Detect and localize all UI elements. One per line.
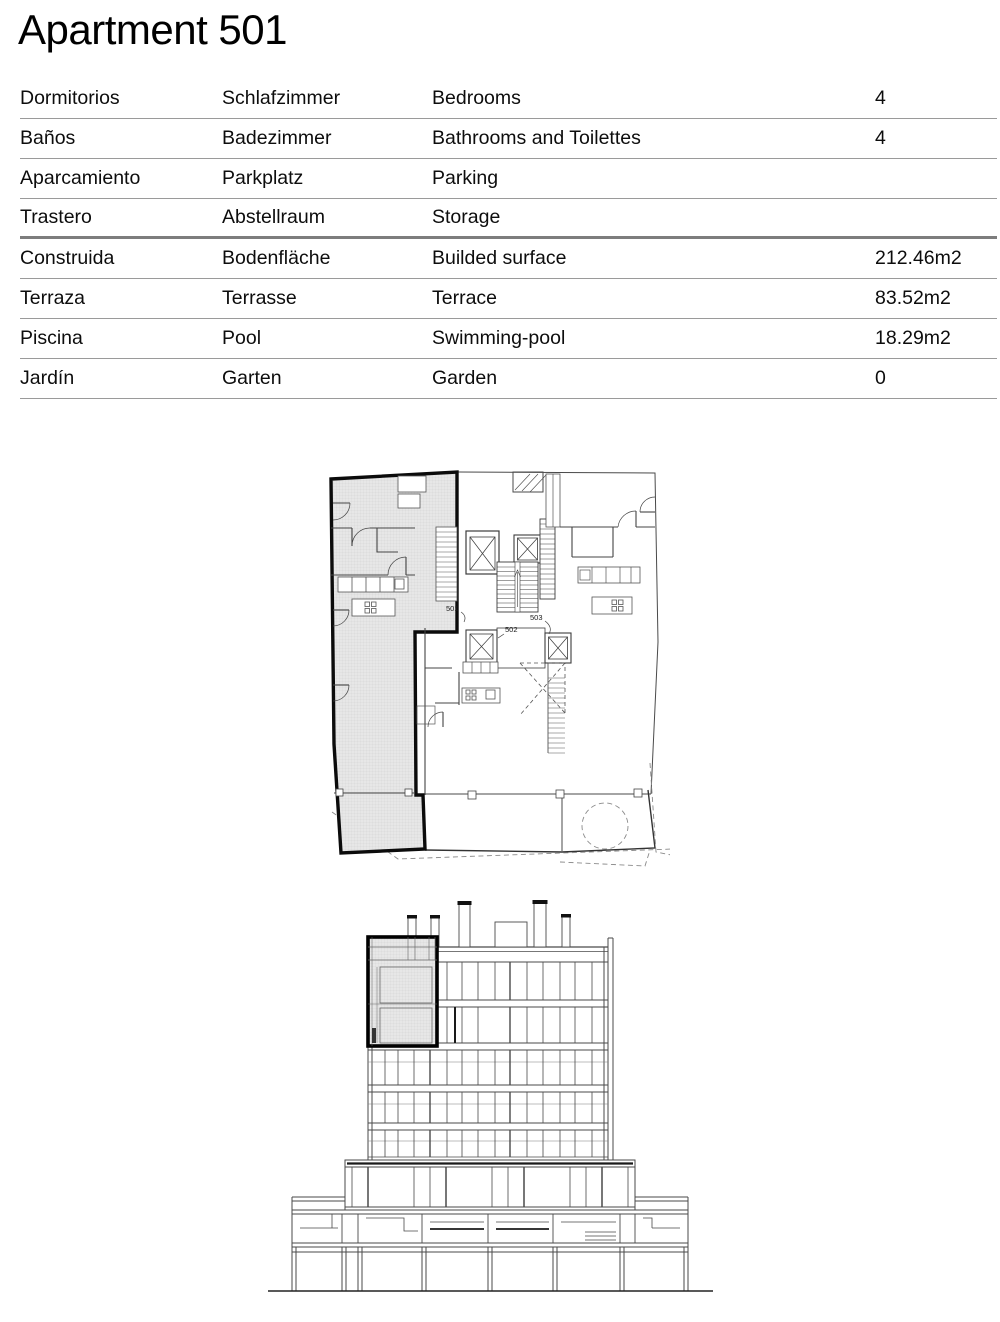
spec-cell-value: 83.52m2 <box>875 287 997 310</box>
elevation-highlight-501 <box>368 937 437 1046</box>
spec-cell-es: Piscina <box>20 327 222 350</box>
spec-cell-value: 18.29m2 <box>875 327 997 350</box>
spec-cell-en: Garden <box>432 367 875 390</box>
side-stairs <box>540 519 555 599</box>
spec-row: Terraza Terrasse Terrace 83.52m2 <box>20 279 997 319</box>
spec-cell-es: Aparcamiento <box>20 167 222 190</box>
main-stairs <box>497 562 538 612</box>
elevator-icon <box>466 531 499 574</box>
elevator-icon <box>466 630 497 663</box>
unit-label-503: 503 <box>530 613 543 622</box>
kitchen-island <box>592 597 632 614</box>
lobby <box>497 628 545 668</box>
spec-cell-es: Trastero <box>20 206 222 229</box>
unit-label-502: 502 <box>505 625 518 634</box>
spec-cell-es: Dormitorios <box>20 87 222 110</box>
spec-row: Dormitorios Schlafzimmer Bedrooms 4 <box>20 79 997 119</box>
spec-cell-en: Bathrooms and Toilettes <box>432 127 875 150</box>
kitchen-island <box>352 599 395 616</box>
elevation-drawing <box>263 896 715 1298</box>
spec-cell-de: Schlafzimmer <box>222 87 432 110</box>
spec-cell-en: Swimming-pool <box>432 327 875 350</box>
spec-cell-de: Bodenfläche <box>222 247 432 270</box>
spec-cell-de: Terrasse <box>222 287 432 310</box>
spec-cell-en: Builded surface <box>432 247 875 270</box>
elevator-icon <box>514 535 541 563</box>
specs-table: Dormitorios Schlafzimmer Bedrooms 4 Baño… <box>20 79 997 399</box>
spec-row: Baños Badezimmer Bathrooms and Toilettes… <box>20 119 997 159</box>
spec-cell-en: Parking <box>432 167 875 190</box>
spec-cell-en: Bedrooms <box>432 87 875 110</box>
spec-row: Trastero Abstellraum Storage <box>20 199 997 239</box>
unit-label-501: 501 <box>446 604 459 613</box>
page-title: Apartment 501 <box>18 6 287 54</box>
spec-row: Construida Bodenfläche Builded surface 2… <box>20 239 997 279</box>
spec-row: Piscina Pool Swimming-pool 18.29m2 <box>20 319 997 359</box>
spec-cell-de: Garten <box>222 367 432 390</box>
apartment-spec-sheet: Apartment 501 Dormitorios Schlafzimmer B… <box>0 0 1000 1322</box>
spec-cell-value: 0 <box>875 367 997 390</box>
building-lines <box>292 938 688 1291</box>
spec-cell-es: Terraza <box>20 287 222 310</box>
spec-row: Aparcamiento Parkplatz Parking <box>20 159 997 199</box>
spec-cell-de: Pool <box>222 327 432 350</box>
spec-cell-de: Badezimmer <box>222 127 432 150</box>
core <box>466 519 571 668</box>
spec-cell-es: Construida <box>20 247 222 270</box>
spec-row: Jardín Garten Garden 0 <box>20 359 997 399</box>
spec-cell-de: Parkplatz <box>222 167 432 190</box>
spec-cell-en: Storage <box>432 206 875 229</box>
spec-cell-de: Abstellraum <box>222 206 432 229</box>
stairs-501 <box>436 527 457 601</box>
spec-cell-es: Jardín <box>20 367 222 390</box>
spec-cell-value: 4 <box>875 127 997 150</box>
stairs-502 <box>520 663 565 753</box>
spec-cell-value: 212.46m2 <box>875 247 997 270</box>
spec-cell-en: Terrace <box>432 287 875 310</box>
spec-cell-value: 4 <box>875 87 997 110</box>
elevator-icon <box>545 633 571 663</box>
floor-plan-drawing: 501 502 503 <box>315 455 670 870</box>
spec-cell-es: Baños <box>20 127 222 150</box>
pool-circle <box>582 803 628 849</box>
